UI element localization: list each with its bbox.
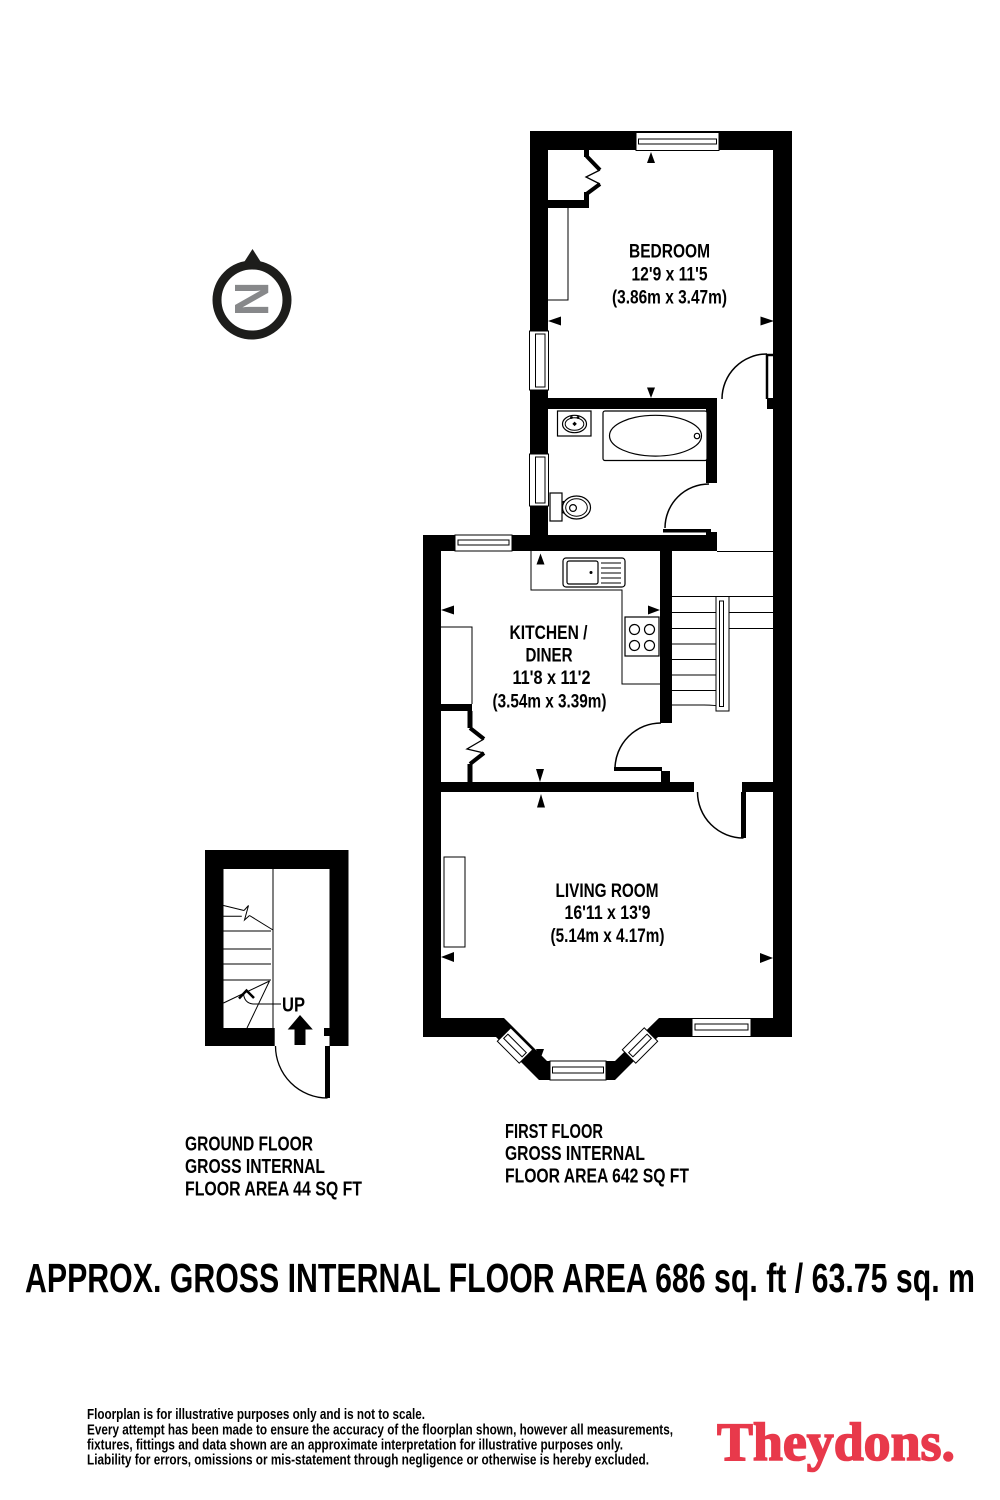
svg-text:(5.14m x 4.17m): (5.14m x 4.17m) [551,925,665,947]
svg-text:(3.54m x 3.39m): (3.54m x 3.39m) [493,691,607,713]
svg-text:12'9 x 11'5: 12'9 x 11'5 [632,263,708,285]
svg-text:LIVING ROOM: LIVING ROOM [556,880,659,902]
svg-text:UP: UP [282,995,305,1017]
svg-text:Theydons.: Theydons. [717,1412,955,1472]
svg-text:16'11 x 13'9: 16'11 x 13'9 [565,902,651,924]
svg-text:FLOOR AREA 44 SQ FT: FLOOR AREA 44 SQ FT [185,1178,362,1200]
svg-text:FIRST FLOOR: FIRST FLOOR [505,1121,603,1143]
svg-text:FLOOR AREA 642 SQ FT: FLOOR AREA 642 SQ FT [505,1166,689,1188]
svg-text:GROUND FLOOR: GROUND FLOOR [185,1134,313,1156]
svg-text:BEDROOM: BEDROOM [629,240,710,262]
svg-text:fixtures, fittings and data sh: fixtures, fittings and data shown are an… [87,1438,623,1454]
svg-text:Liability for errors, omission: Liability for errors, omissions or mis-s… [87,1453,649,1469]
svg-text:GROSS INTERNAL: GROSS INTERNAL [505,1143,645,1165]
svg-text:Every attempt has been made to: Every attempt has been made to ensure th… [87,1422,673,1438]
svg-text:N: N [224,282,277,317]
svg-text:APPROX. GROSS INTERNAL FLOOR A: APPROX. GROSS INTERNAL FLOOR AREA 686 sq… [25,1255,975,1301]
svg-text:Floorplan is for illustrative: Floorplan is for illustrative purposes o… [87,1407,425,1423]
svg-text:DINER: DINER [526,645,573,667]
svg-text:GROSS INTERNAL: GROSS INTERNAL [185,1156,325,1178]
svg-text:11'8 x 11'2: 11'8 x 11'2 [513,667,591,689]
svg-text:KITCHEN /: KITCHEN / [510,622,588,644]
svg-text:(3.86m x 3.47m): (3.86m x 3.47m) [612,287,727,309]
